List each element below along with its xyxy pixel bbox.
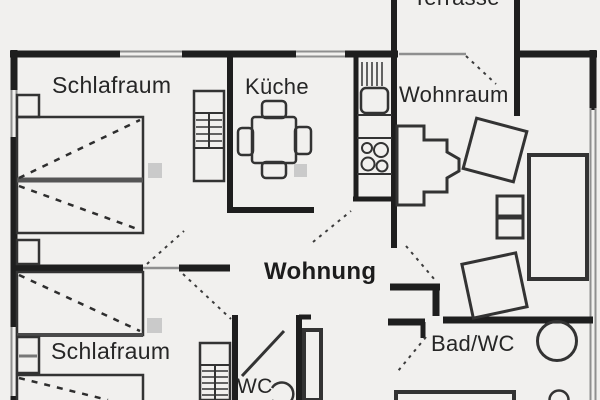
door-swing-hall	[406, 246, 435, 280]
accent-square	[147, 318, 162, 333]
room-label-wohnung: Wohnung	[264, 259, 376, 285]
bed-diagonal	[19, 120, 140, 178]
bed-diagonal	[19, 186, 140, 230]
room-label-wohnraum: Wohnraum	[399, 83, 509, 107]
toilet-icon	[550, 391, 569, 400]
door-swing-terrace	[466, 56, 496, 84]
wc-duct	[304, 330, 321, 400]
cabinet-hatch-icon	[202, 365, 228, 400]
bed	[17, 375, 143, 400]
kitchen-table	[252, 117, 296, 163]
bed-diagonal	[19, 378, 108, 400]
wardrobe-hatch-icon	[196, 113, 222, 148]
room-label-schlafraum-top: Schlafraum	[52, 73, 171, 98]
sink-drainboard-icon	[362, 62, 382, 86]
room-label-schlafraum-bottom: Schlafraum	[51, 339, 170, 364]
side-table	[497, 218, 523, 238]
bedroom-top-furniture	[17, 91, 224, 264]
sink-icon	[361, 88, 388, 113]
double-bed	[17, 117, 143, 233]
accent-square	[294, 164, 307, 177]
stove-icon	[362, 143, 389, 172]
bedroom-bottom-furniture	[17, 272, 143, 400]
chair	[262, 101, 286, 118]
washbasin-icon	[538, 322, 577, 361]
side-table	[497, 196, 523, 216]
floorplan: Terrasse Schlafraum Küche Wohnraum Wohnu…	[0, 0, 600, 400]
door-swing-kitchen	[313, 211, 351, 242]
room-label-kueche: Küche	[245, 75, 309, 99]
armchair	[397, 126, 459, 205]
door-swing-bath	[398, 337, 426, 371]
door-swing-bedroom-bottom	[183, 274, 231, 319]
room-label-terrasse: Terrasse	[413, 0, 500, 10]
bathtub-icon	[396, 392, 514, 400]
chair-tilted	[463, 118, 527, 182]
nightstand	[17, 95, 39, 117]
toilet-icon	[272, 383, 293, 400]
wc-door-leaf	[242, 331, 284, 376]
room-label-wc: WC	[237, 375, 273, 398]
bed-diagonal	[19, 275, 140, 331]
chair	[295, 127, 311, 154]
chair	[262, 162, 286, 178]
accent-square	[148, 163, 162, 178]
room-label-bad-wc: Bad/WC	[431, 332, 515, 356]
chair-tilted	[462, 253, 527, 318]
sofa	[529, 155, 587, 279]
door-swing-bedroom-top	[147, 231, 184, 264]
nightstand	[17, 240, 39, 264]
